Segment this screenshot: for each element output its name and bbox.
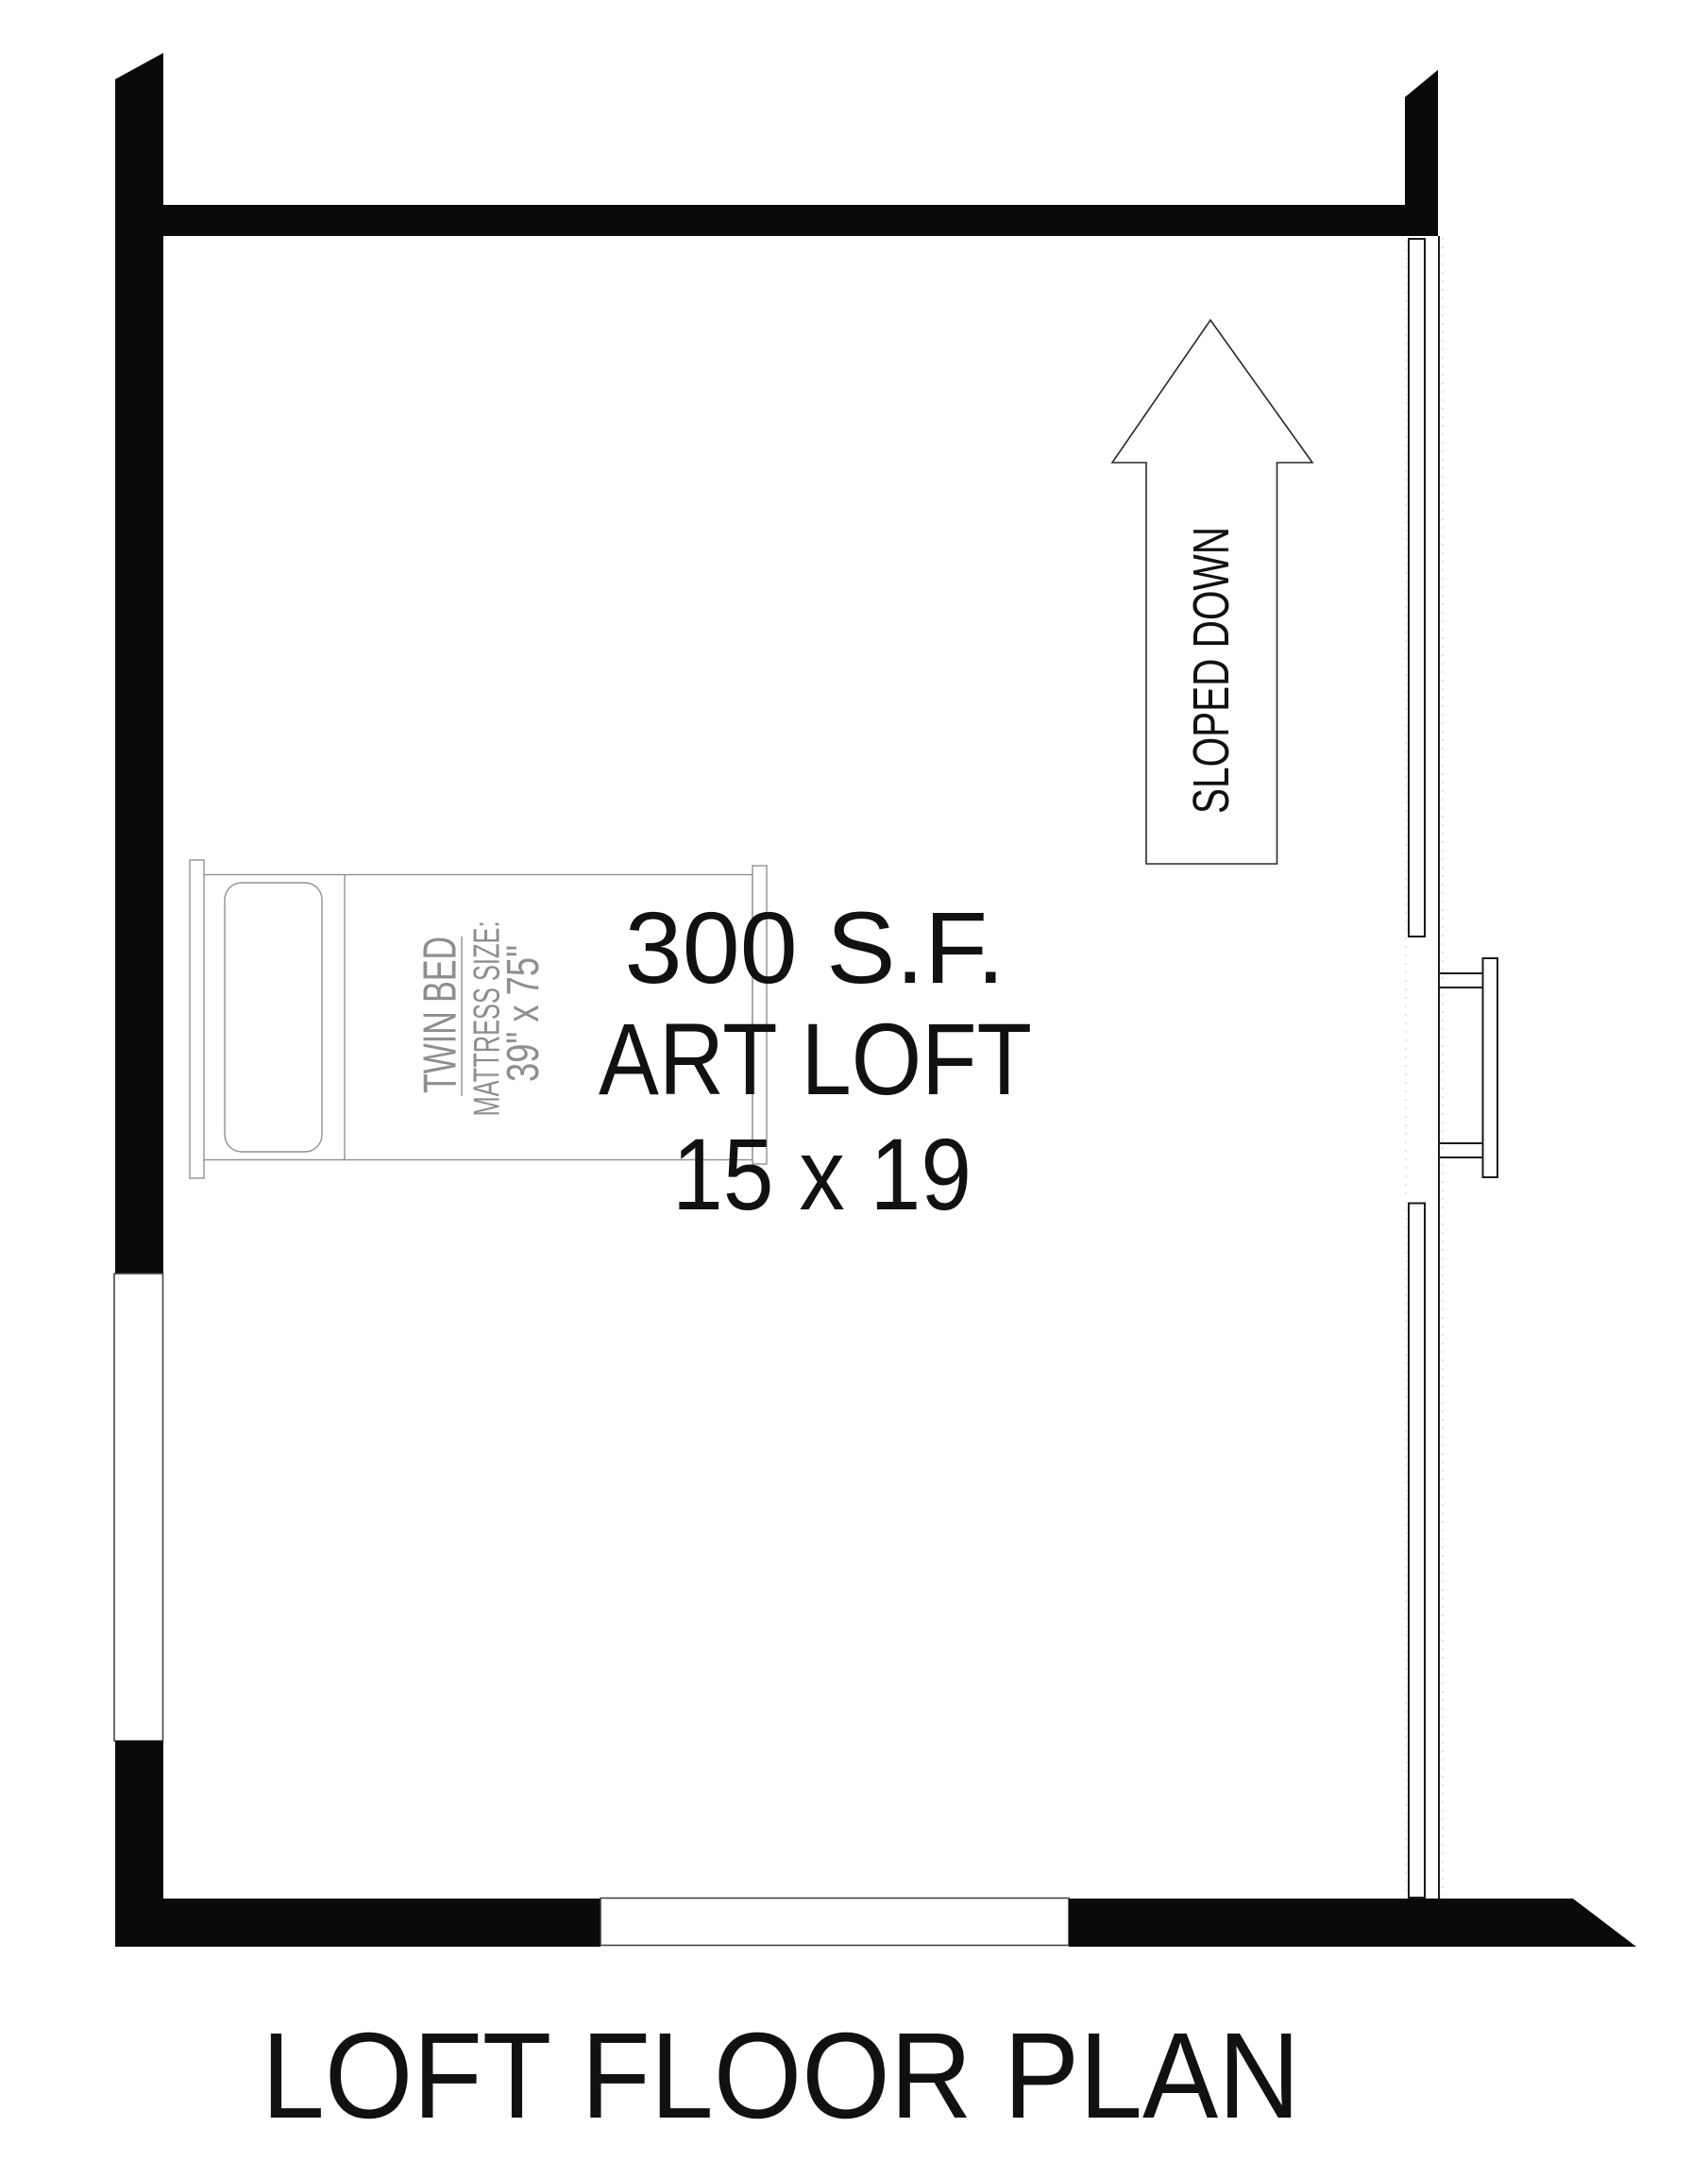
svg-text:TWIN BED: TWIN BED (415, 937, 466, 1093)
svg-text:ART LOFT: ART LOFT (599, 1003, 1032, 1116)
svg-text:SLOPED DOWN: SLOPED DOWN (1183, 527, 1240, 814)
svg-text:15 x 19: 15 x 19 (672, 1118, 972, 1231)
svg-text:39" x 75": 39" x 75" (499, 945, 549, 1082)
svg-text:LOFT FLOOR PLAN: LOFT FLOOR PLAN (262, 2008, 1300, 2144)
svg-text:300 S.F.: 300 S.F. (625, 891, 1006, 1005)
